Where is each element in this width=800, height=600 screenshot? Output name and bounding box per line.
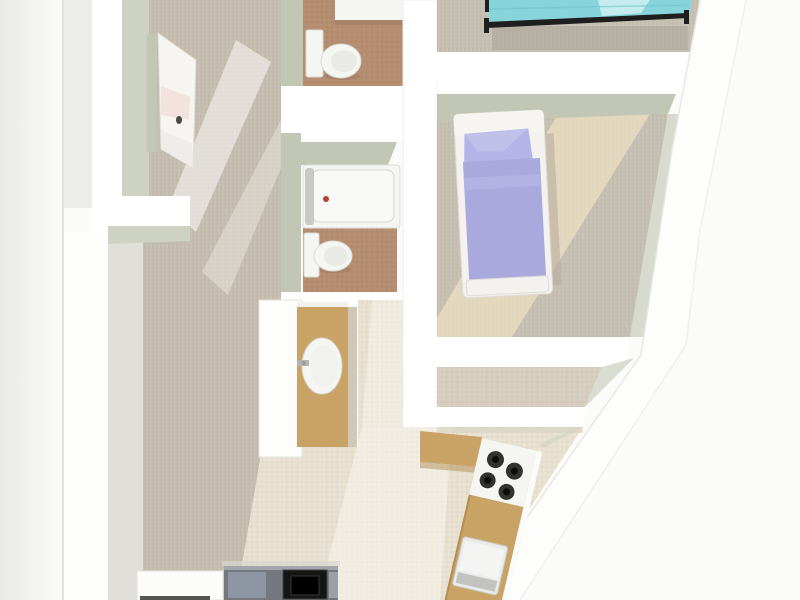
wall-below-bedroom [420,52,690,94]
bedroom-upper [420,0,700,94]
wall-base-shadow [437,427,583,433]
counter-top-leg [420,431,482,467]
cabinet-base-shadow [140,596,210,600]
outside-ledge [64,0,92,208]
vanity-nook [259,300,357,457]
wall-stub-face [108,226,190,244]
bathroom-middle [281,133,403,308]
door-handle-icon [176,116,182,124]
range-appliance-icon [224,566,338,600]
bed-floor-shadow [492,26,688,50]
bed-post [484,18,489,33]
wall-inner-face-pale [108,233,143,600]
bed-post [485,0,489,12]
vanity-top-cap [297,302,348,307]
wall-inner-face [281,0,303,86]
toilet-tank [306,30,323,77]
wall-below-closet [403,407,585,427]
faucet-knob [302,361,306,365]
counter-shadow [335,20,403,25]
wall-stub [95,196,190,231]
appliance-left-panel [228,572,266,598]
appliance-right-panel [329,572,338,598]
bed-purple-icon [453,109,561,298]
appliance-top-edge [224,566,338,570]
white-cabinet [137,571,223,600]
floor-plan-canvas [0,0,800,600]
toilet-bowl-inner [324,246,348,266]
vanity-sink-basin [310,345,338,387]
door-jamb [147,34,157,152]
bathtub-inner [312,170,394,222]
vanity-side-shadow [348,307,357,447]
bathtub-icon [303,165,400,228]
wall-segment [64,233,108,600]
floor-plan-image [0,0,800,600]
appliance-shadow [222,561,340,566]
appliance-black-inner [291,576,319,595]
drain-icon [323,196,329,202]
toilet-bowl-inner [331,50,357,72]
wall-below-bedroom [403,337,630,367]
closet-floor-texture [437,367,602,407]
sink-counter [335,0,403,20]
bedroom-middle [403,94,681,367]
bathtub-ledge-shade [305,168,314,225]
bed-post [684,10,689,24]
vanity-back-wall [259,300,302,457]
outside-left-gradient [0,0,64,600]
wall-inner-face [281,133,301,292]
wall-inner-face [290,142,397,165]
